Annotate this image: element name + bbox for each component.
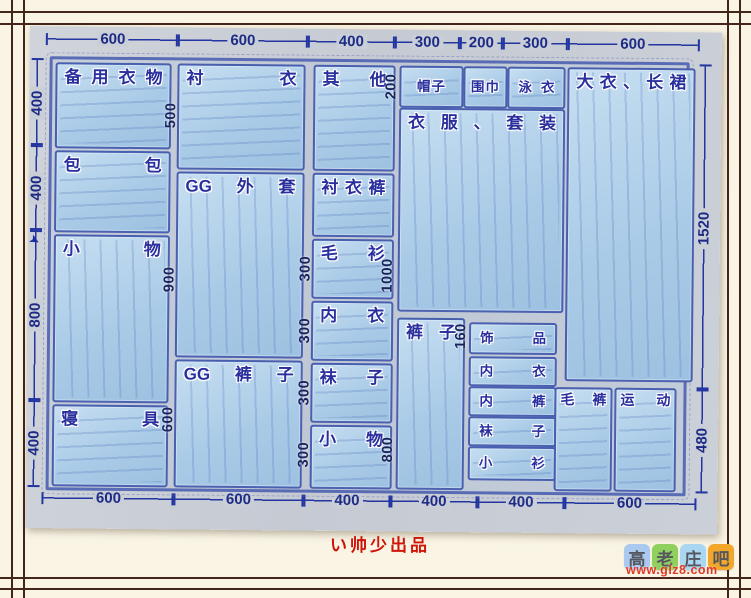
dim-left-3: 800 [28, 228, 42, 402]
compartment-bedding: 寝具 [52, 404, 169, 487]
drawer-tops: 小衫 [468, 446, 556, 481]
compartment-label: 衣服、套装 [401, 111, 563, 136]
dim-inner-gg-coats: 900 [161, 257, 177, 301]
compartment-shirt-pants: 衬衣裤 [312, 173, 395, 238]
wardrobe-plan-photo: 600 600 400 300 200 300 600 600 600 400 … [25, 26, 722, 535]
drawer-accessories: 饰品 [469, 322, 557, 355]
dim-label: 300 [520, 36, 551, 51]
compartment-hats: 帽子 [399, 66, 463, 109]
drawer-label: 内裤 [470, 393, 554, 411]
compartment-label: GG裤子 [177, 362, 301, 386]
compartment-gg-coats: GG外套 [175, 171, 305, 358]
frame-line-right-outer [739, 0, 741, 598]
dim-label: 600 [223, 492, 254, 507]
dim-label: 600 [93, 491, 124, 506]
compartment-underwear-mid: 内衣 [311, 301, 394, 362]
dim-label: 200 [466, 35, 497, 50]
dim-bottom-4: 400 [388, 495, 479, 508]
dim-inner-accessories: 160 [453, 314, 469, 358]
dim-inner-socks: 300 [296, 371, 312, 415]
drawer-label: 饰品 [471, 330, 555, 348]
compartment-label: 包包 [57, 153, 169, 177]
compartment-label: 小物 [312, 428, 390, 452]
dim-top-6: 300 [501, 38, 570, 51]
compartment-label: 帽子 [401, 78, 461, 95]
compartment-bags: 包包 [54, 150, 171, 233]
compartment-label: 衬衣 [179, 66, 303, 90]
forum-photo-page: { "dims": { "top": ["600","600","400","3… [0, 0, 751, 598]
dim-right-1: 1520 [697, 64, 712, 391]
frame-line-right-inner [727, 0, 729, 598]
compartment-wool-pants: 毛裤 [554, 387, 613, 492]
compartment-label: 袜子 [313, 366, 391, 390]
drawer-socks: 袜子 [468, 416, 556, 447]
dim-top-4: 300 [393, 36, 462, 49]
dim-label: 400 [331, 493, 362, 508]
compartment-sports: 运动 [614, 388, 677, 493]
drawer-label: 袜子 [470, 423, 554, 441]
dim-label: 300 [412, 35, 443, 50]
dim-bottom-3: 400 [301, 495, 392, 508]
compartment-shirts: 衬衣 [177, 63, 306, 170]
compartment-label: 泳衣 [509, 79, 563, 96]
frame-line-left-outer [11, 0, 13, 598]
site-watermark: 高 老 庄 吧 www.glz8.com [624, 544, 746, 577]
site-url: www.glz8.com [626, 563, 746, 577]
dim-inner-underwear: 300 [297, 309, 313, 353]
frame-line-bottom-inner [0, 577, 751, 579]
dim-label: 400 [30, 86, 45, 119]
drawer-label: 小衫 [470, 455, 554, 473]
dim-bottom-2: 600 [171, 493, 305, 506]
drawer-label: 内衣 [471, 363, 555, 381]
frame-line-top-inner [0, 23, 751, 25]
compartment-label: 其他 [315, 68, 393, 92]
dim-top-7: 600 [566, 38, 700, 51]
compartment-gg-pants: GG裤子 [174, 359, 303, 488]
compartment-socks-mid: 袜子 [310, 363, 393, 424]
compartment-suits: 衣服、套装 [397, 108, 565, 314]
compartment-label: 衬衣裤 [314, 176, 392, 200]
dim-label: 600 [614, 496, 645, 511]
dim-top-3: 400 [306, 36, 397, 49]
dim-label: 400 [29, 171, 44, 204]
dim-inner-gg-pants: 600 [160, 397, 176, 441]
dim-top-5: 200 [458, 37, 505, 49]
dim-label: 600 [97, 32, 128, 47]
dim-top-1: 600 [46, 33, 180, 46]
dim-label: 800 [28, 298, 43, 331]
dim-bottom-5: 400 [475, 496, 566, 509]
producer-watermark: い帅少出品 [288, 531, 472, 556]
compartment-swimwear: 泳衣 [507, 67, 565, 110]
dim-inner-pants: 800 [380, 427, 396, 471]
compartment-scarves: 围巾 [463, 66, 507, 108]
dim-bottom-6: 600 [562, 497, 696, 510]
compartment-small-items-left: 小物 [52, 234, 170, 403]
dim-label: 400 [418, 494, 449, 509]
drawer-underwear: 内衣 [469, 356, 557, 387]
compartment-label: 备用衣物 [57, 65, 169, 89]
compartment-label: 毛裤 [556, 390, 610, 410]
dim-inner-suits: 1000 [379, 253, 395, 297]
dim-inner-small: 300 [296, 433, 312, 477]
dim-left-1: 400 [31, 58, 44, 147]
dim-label: 400 [26, 426, 41, 459]
compartment-label: GG外套 [178, 174, 302, 198]
dim-left-2: 400 [30, 143, 43, 232]
compartment-label: 围巾 [465, 79, 505, 96]
compartment-label: 寝具 [54, 407, 166, 431]
dim-inner-shirts: 500 [163, 93, 179, 137]
dim-label: 400 [505, 494, 536, 509]
dim-right-2: 480 [696, 387, 709, 493]
dim-label: 600 [227, 33, 258, 48]
compartment-spare-clothes: 备用衣物 [55, 62, 172, 149]
dim-top-2: 600 [176, 34, 310, 47]
compartment-coats-long-skirts: 大衣、长裙 [565, 67, 696, 382]
dim-label: 600 [617, 37, 648, 52]
compartment-label: 内衣 [313, 304, 391, 328]
frame-line-top-outer [0, 11, 751, 13]
dim-label: 1520 [696, 207, 711, 249]
dim-bottom-1: 600 [41, 492, 175, 505]
dim-label: 480 [694, 424, 709, 457]
frame-line-bottom-outer [0, 588, 751, 590]
dim-label: 400 [336, 34, 367, 49]
dim-inner-hats: 200 [383, 64, 399, 108]
dim-inner-sweaters: 300 [297, 247, 313, 291]
compartment-label: 运动 [616, 391, 674, 411]
dim-left-4: 400 [28, 398, 41, 487]
compartment-label: 大衣、长裙 [569, 70, 693, 94]
drawer-underpants: 内裤 [468, 386, 556, 417]
compartment-label: 小物 [56, 237, 168, 261]
